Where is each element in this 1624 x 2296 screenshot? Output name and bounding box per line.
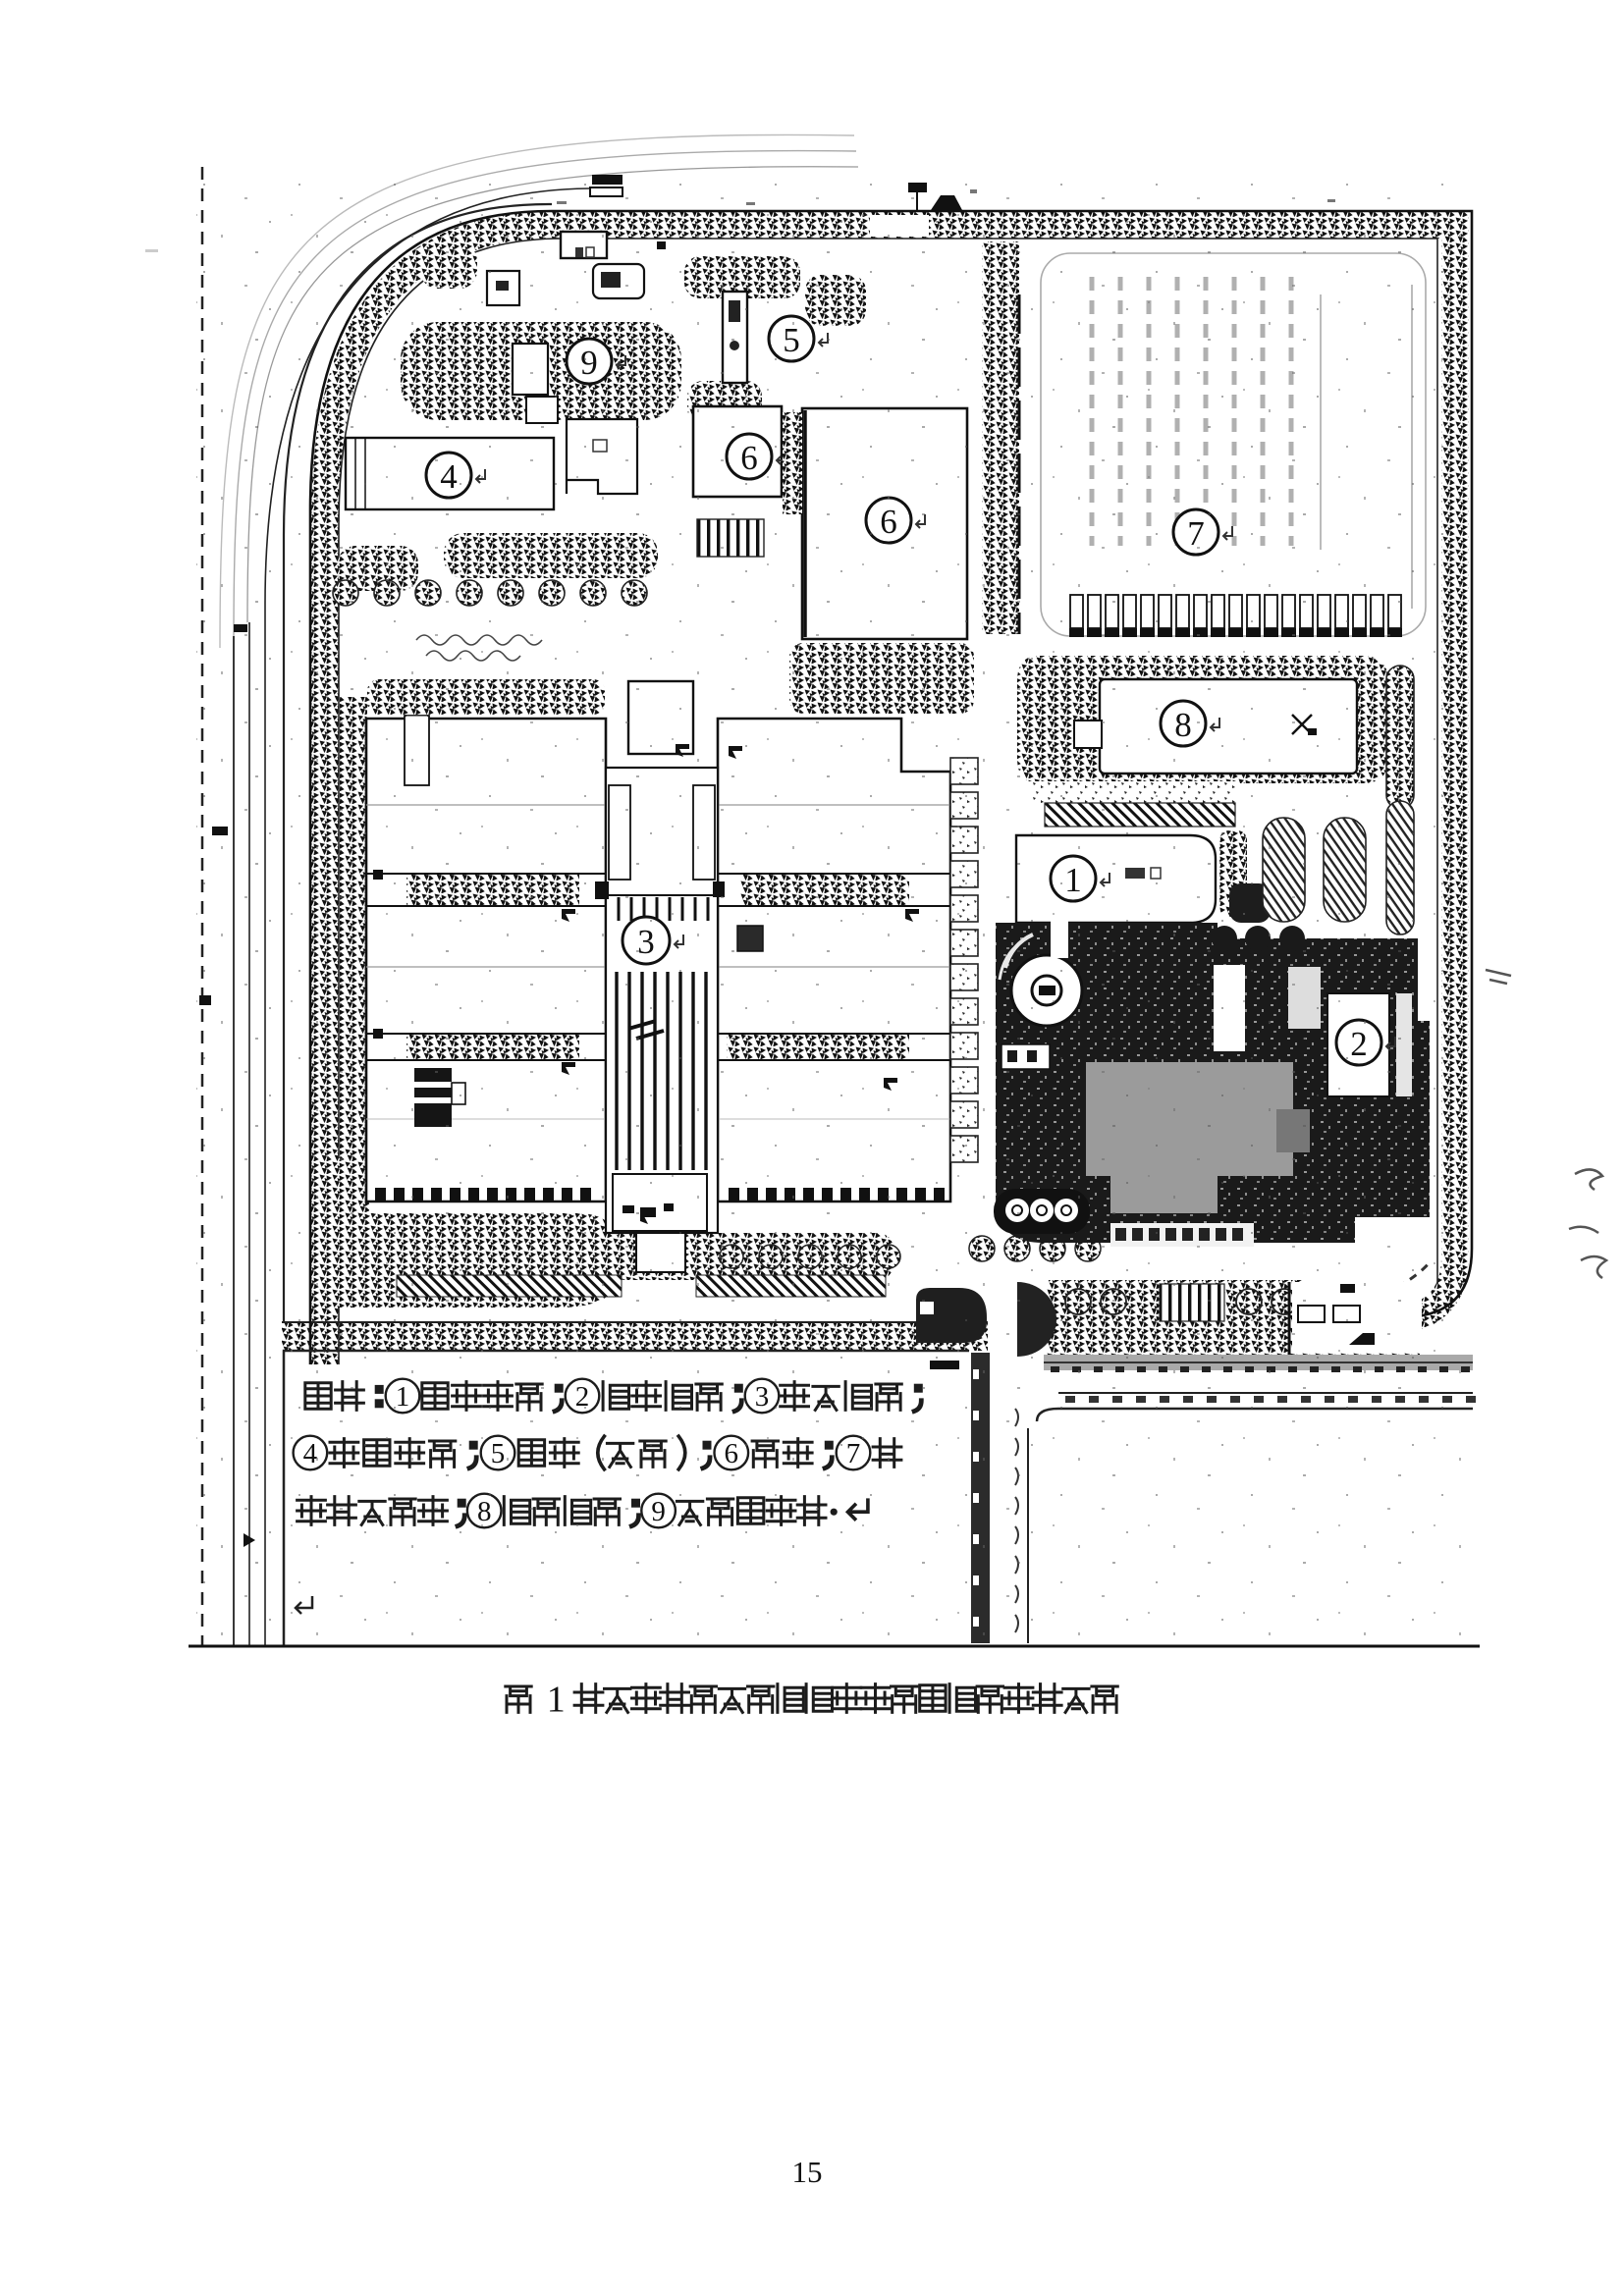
svg-text:15: 15 — [792, 2155, 823, 2189]
svg-text:1: 1 — [547, 1680, 566, 1721]
